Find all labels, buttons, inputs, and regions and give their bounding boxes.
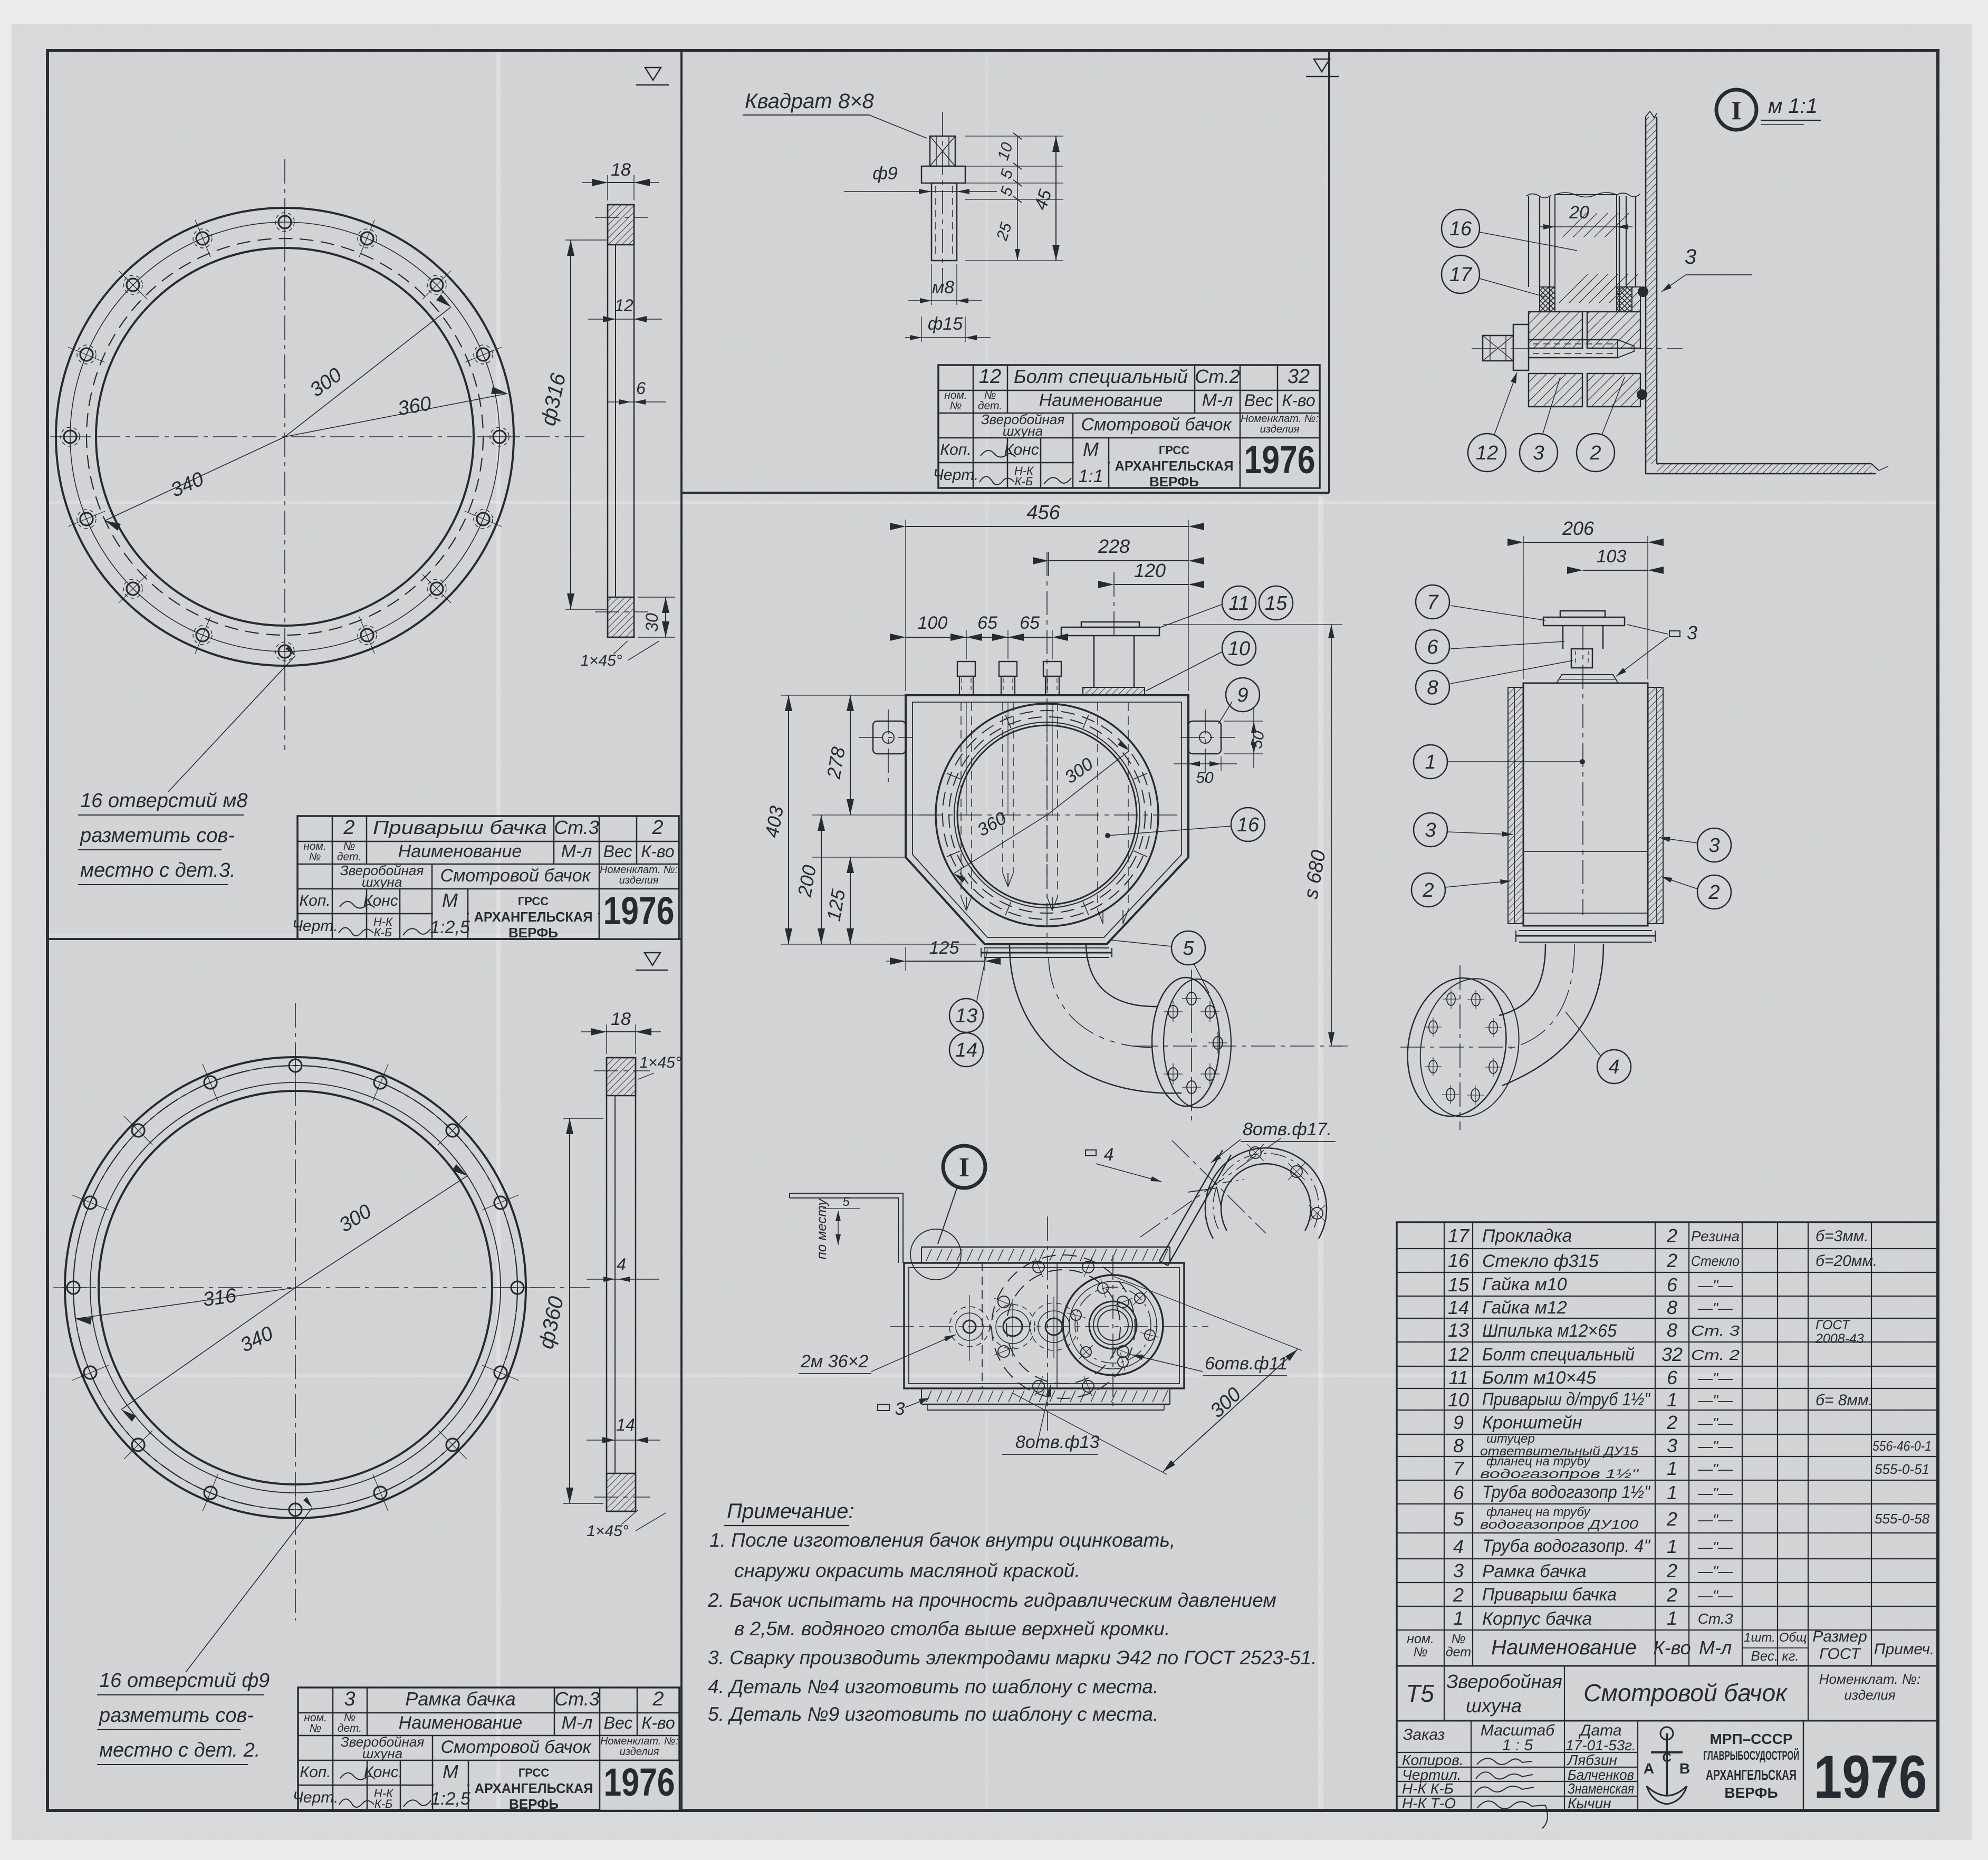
svg-text:1976: 1976 [603,889,675,933]
svg-text:—"—: —"— [1697,1300,1733,1316]
svg-text:М: М [443,1761,458,1782]
svg-text:556-46-0-1: 556-46-0-1 [1872,1438,1932,1454]
svg-text:ф15: ф15 [928,314,963,334]
svg-text:14: 14 [955,1039,977,1061]
svg-text:Рамка бачка: Рамка бачка [405,1688,515,1710]
svg-text:М-л: М-л [1699,1637,1732,1658]
svg-text:1: 1 [1667,1536,1677,1557]
svg-text:Номенклат. №:: Номенклат. №: [1819,1671,1920,1687]
svg-text:водогазопров 1½": водогазопров 1½" [1480,1467,1639,1481]
svg-text:1: 1 [1425,751,1436,773]
svg-text:12: 12 [1448,1344,1469,1365]
svg-text:5: 5 [842,1195,850,1209]
svg-text:5: 5 [1453,1508,1464,1530]
svg-text:7: 7 [1427,591,1439,613]
svg-text:14: 14 [1448,1297,1469,1318]
svg-text:ВЕРФЬ: ВЕРФЬ [1724,1785,1778,1801]
svg-text:М-л: М-л [562,1713,593,1733]
svg-text:65: 65 [977,613,997,633]
svg-text:456: 456 [1026,502,1060,524]
svg-text:1: 1 [1667,1389,1677,1411]
svg-text:Знаменская: Знаменская [1568,1780,1634,1797]
svg-text:2: 2 [1666,1584,1677,1606]
svg-text:Болт специальный: Болт специальный [1482,1345,1635,1365]
svg-text:Гайка м10: Гайка м10 [1482,1274,1567,1295]
svg-text:штуцер: штуцер [1486,1432,1535,1446]
svg-text:ф9: ф9 [872,164,897,184]
svg-text:водогазопров ДУ100: водогазопров ДУ100 [1480,1518,1639,1532]
svg-text:К-Б: К-Б [374,926,392,939]
svg-text:4: 4 [1453,1536,1464,1557]
svg-text:ГОСТ: ГОСТ [1819,1645,1861,1663]
svg-text:2: 2 [1666,1412,1677,1433]
svg-text:Номенклат. №:: Номенклат. №: [600,864,678,876]
svg-text:Вес: Вес [603,842,632,861]
svg-text:1976: 1976 [1814,1743,1927,1811]
svg-text:К-во: К-во [641,1713,675,1732]
svg-text:13: 13 [1448,1319,1469,1341]
svg-text:14: 14 [616,1415,635,1434]
svg-text:Наименование: Наименование [398,841,522,861]
svg-text:Рамка бачка: Рамка бачка [1482,1561,1587,1581]
svg-text:—"—: —"— [1697,1370,1733,1386]
svg-text:К-во: К-во [1282,391,1315,410]
svg-text:1×45°: 1×45° [587,1522,629,1540]
svg-text:1. После изготовления бачок: 1. После изготовления бачок внутри оцинк… [709,1529,1175,1551]
svg-text:Корпус бачка: Корпус бачка [1482,1609,1592,1629]
svg-text:1шт.: 1шт. [1744,1631,1775,1645]
svg-text:Конс.: Конс. [363,892,402,909]
svg-text:фланец на трубу: фланец на трубу [1486,1454,1591,1469]
svg-text:9: 9 [1237,684,1248,706]
svg-text:Смотровой бачок: Смотровой бачок [1583,1679,1788,1706]
svg-text:шхуна: шхуна [1003,423,1043,439]
svg-text:Наименование: Наименование [399,1713,523,1733]
svg-text:17-01-53г.: 17-01-53г. [1566,1737,1636,1753]
svg-text:1976: 1976 [1244,438,1315,482]
svg-text:Черт.: Черт. [933,466,979,484]
svg-text:2: 2 [652,1688,664,1710]
svg-text:Номенклат. №:: Номенклат. №: [1241,413,1319,425]
svg-text:8: 8 [1667,1297,1677,1318]
svg-text:16: 16 [1237,814,1260,836]
svg-text:б= 8мм.: б= 8мм. [1816,1392,1873,1409]
svg-text:2: 2 [651,817,663,839]
svg-text:№: № [1413,1645,1427,1660]
svg-text:изделия: изделия [619,875,659,886]
svg-text:ГОСТ: ГОСТ [1816,1318,1850,1332]
svg-text:Резина: Резина [1691,1228,1740,1244]
svg-text:ВЕРФЬ: ВЕРФЬ [1149,474,1199,490]
svg-text:1: 1 [1667,1607,1677,1629]
svg-text:Заказ: Заказ [1403,1726,1445,1743]
svg-text:Квадрат 8×8: Квадрат 8×8 [745,90,874,113]
svg-text:2м 36×2: 2м 36×2 [800,1351,868,1372]
svg-text:Кронштейн: Кронштейн [1482,1413,1582,1433]
svg-text:Примеч.: Примеч. [1874,1641,1935,1658]
svg-text:16: 16 [1449,218,1472,240]
svg-text:С: С [1662,1751,1671,1765]
svg-text:АРХАНГЕЛЬСКАЯ: АРХАНГЕЛЬСКАЯ [474,909,593,925]
svg-text:м8: м8 [932,277,954,298]
svg-text:—"—: —"— [1697,1461,1733,1477]
svg-text:изделия: изделия [1844,1687,1895,1703]
svg-text:Смотровой бачок: Смотровой бачок [440,866,591,886]
svg-text:2: 2 [343,817,354,839]
svg-text:Труба водогазопр 1½": Труба водогазопр 1½" [1482,1482,1651,1502]
svg-text:шхуна: шхуна [362,1746,402,1761]
svg-text:32: 32 [1288,366,1310,388]
svg-text:по месту: по месту [813,1197,829,1259]
svg-text:м 1:1: м 1:1 [1768,94,1818,118]
svg-text:1: 1 [1667,1458,1677,1479]
svg-text:555-0-58: 555-0-58 [1875,1511,1930,1527]
svg-text:3: 3 [895,1399,905,1419]
svg-text:М-л: М-л [1202,390,1233,410]
svg-text:1: 1 [1667,1482,1677,1503]
svg-text:1×45°: 1×45° [580,652,622,669]
svg-text:Конс.: Конс. [1004,441,1043,458]
svg-text:Ст.3: Ст.3 [1698,1610,1733,1627]
svg-text:316: 316 [201,1284,238,1311]
svg-text:Шпилька м12×65: Шпилька м12×65 [1482,1321,1617,1341]
svg-text:I: I [959,1153,969,1183]
svg-text:Наименование: Наименование [1491,1636,1637,1659]
svg-text:Н-К Т-О: Н-К Т-О [1402,1795,1456,1811]
svg-text:Смотровой бачок: Смотровой бачок [440,1737,592,1757]
svg-text:6: 6 [636,379,646,398]
svg-text:50: 50 [1196,769,1214,787]
svg-text:3: 3 [344,1688,355,1710]
svg-text:6: 6 [1667,1274,1678,1296]
svg-text:6: 6 [1427,636,1438,658]
svg-text:б=20мм.: б=20мм. [1816,1252,1877,1270]
svg-text:8отв.ф13: 8отв.ф13 [1015,1432,1100,1452]
svg-text:4: 4 [1104,1145,1114,1165]
svg-text:дет.: дет. [337,851,361,863]
svg-text:К-во: К-во [641,842,674,861]
svg-text:—"—: —"— [1697,1563,1733,1579]
svg-text:ВЕРФЬ: ВЕРФЬ [509,1796,559,1812]
svg-text:Ст.3: Ст.3 [554,817,599,838]
svg-text:Гайка м12: Гайка м12 [1482,1298,1567,1318]
svg-text:3: 3 [1667,1435,1677,1456]
svg-text:1 : 5: 1 : 5 [1502,1737,1533,1754]
svg-text:К-во: К-во [1653,1637,1691,1658]
svg-text:Коп.: Коп. [299,892,330,909]
svg-text:ГЛАВРЫБОСУДОСТРОЙ: ГЛАВРЫБОСУДОСТРОЙ [1703,1748,1799,1763]
svg-text:М: М [1083,438,1099,460]
svg-text:7: 7 [1453,1458,1465,1479]
svg-text:Зверобойная: Зверобойная [1446,1671,1562,1692]
svg-text:2: 2 [1453,1584,1464,1606]
svg-text:5. Деталь №9 изготовить по: 5. Деталь №9 изготовить по шаблону с мес… [708,1703,1158,1725]
svg-text:6отв.ф11: 6отв.ф11 [1205,1354,1288,1374]
svg-text:10: 10 [1228,638,1250,660]
svg-text:К-Б: К-Б [374,1797,393,1810]
svg-text:№: № [950,400,962,412]
svg-text:ВЕРФЬ: ВЕРФЬ [508,925,558,941]
svg-text:32: 32 [1662,1344,1683,1365]
svg-text:18: 18 [611,160,631,180]
svg-text:ГРСС: ГРСС [1159,444,1189,457]
svg-text:Номенклат. №:: Номенклат. №: [600,1736,678,1747]
svg-text:1: 1 [1453,1607,1464,1629]
svg-text:—"—: —"— [1697,1587,1733,1604]
svg-text:4: 4 [617,1255,626,1274]
svg-text:3: 3 [1708,835,1720,857]
svg-text:Размер: Размер [1812,1628,1867,1645]
svg-text:3: 3 [1453,1560,1464,1581]
svg-text:—"—: —"— [1697,1511,1733,1528]
svg-text:изделия: изделия [1260,424,1300,435]
svg-text:3: 3 [1685,245,1696,269]
svg-text:Болт специальный: Болт специальный [1014,366,1188,387]
svg-text:А: А [1644,1760,1654,1777]
svg-text:местно с дет.3.: местно с дет.3. [80,859,236,881]
svg-text:ГРСС: ГРСС [518,1766,549,1779]
svg-text:Смотровой бачок: Смотровой бачок [1081,415,1232,435]
svg-text:дет.: дет. [978,400,1002,412]
svg-text:ГРСС: ГРСС [518,895,549,908]
svg-text:местно с дет. 2.: местно с дет. 2. [99,1739,260,1761]
svg-text:18: 18 [611,1009,631,1029]
svg-text:снаружи окрасить масляной к: снаружи окрасить масляной краской. [734,1560,1080,1581]
svg-text:9: 9 [1453,1412,1464,1433]
svg-text:16: 16 [1448,1250,1470,1271]
svg-text:12: 12 [614,296,633,315]
svg-text:3. Сварку производить электр: 3. Сварку производить электродами марки … [708,1647,1317,1669]
svg-text:4. Деталь №4 изготовить по: 4. Деталь №4 изготовить по шаблону с мес… [708,1676,1158,1698]
svg-text:11: 11 [1448,1367,1468,1388]
svg-text:20: 20 [1569,203,1589,223]
svg-text:шхуна: шхуна [1466,1695,1522,1717]
svg-text:шхуна: шхуна [362,874,402,890]
svg-text:206: 206 [1562,517,1595,539]
svg-text:фланец на трубу: фланец на трубу [1486,1505,1591,1519]
svg-text:Черт.: Черт. [292,917,338,935]
svg-text:555-0-51: 555-0-51 [1875,1461,1929,1477]
svg-text:2: 2 [1666,1250,1677,1271]
svg-text:1:2,5: 1:2,5 [430,1789,470,1809]
svg-text:МРП–СССР: МРП–СССР [1710,1731,1792,1747]
svg-text:2: 2 [1589,442,1601,464]
svg-text:—"—: —"— [1697,1539,1733,1555]
svg-text:12: 12 [979,366,1001,388]
svg-text:50: 50 [1247,730,1267,750]
svg-text:разметить сов-: разметить сов- [80,824,235,847]
svg-text:30: 30 [642,613,661,632]
svg-text:Труба водогазопр. 4": Труба водогазопр. 4" [1482,1536,1651,1556]
svg-text:Стекло: Стекло [1691,1253,1740,1269]
svg-text:ном.: ном. [1407,1632,1434,1646]
svg-text:Вес. кг.: Вес. кг. [1751,1648,1799,1664]
svg-text:Вес: Вес [1244,391,1273,410]
svg-text:120: 120 [1134,560,1166,581]
svg-text:Ст. 3: Ст. 3 [1691,1322,1740,1339]
svg-text:Приварыш д/труб 1½": Приварыш д/труб 1½" [1482,1389,1651,1410]
svg-text:Копиров.: Копиров. [1402,1752,1464,1768]
svg-text:Примечание:: Примечание: [727,1500,854,1523]
svg-text:I: I [1731,95,1741,125]
svg-text:АРХАНГЕЛЬСКАЯ: АРХАНГЕЛЬСКАЯ [1115,458,1234,474]
svg-text:100: 100 [918,613,948,633]
svg-text:Вес: Вес [604,1713,633,1732]
svg-text:В: В [1679,1760,1690,1777]
svg-text:Т5: Т5 [1406,1680,1434,1707]
svg-text:1:1: 1:1 [1078,466,1103,486]
svg-text:Ст.2: Ст.2 [1195,366,1240,387]
svg-text:2008-43: 2008-43 [1815,1331,1864,1346]
svg-text:103: 103 [1597,547,1627,567]
svg-text:АРХАНГЕЛЬСКАЯ: АРХАНГЕЛЬСКАЯ [475,1780,593,1796]
svg-text:изделия: изделия [620,1746,659,1758]
svg-text:Кычин: Кычин [1568,1795,1611,1811]
svg-text:Наименование: Наименование [1039,390,1163,410]
svg-text:Прокладка: Прокладка [1482,1226,1572,1246]
svg-text:11: 11 [1228,592,1249,615]
svg-text:1×45°: 1×45° [639,1054,681,1071]
svg-text:3: 3 [1687,622,1697,644]
svg-text:8: 8 [1453,1435,1464,1456]
svg-text:3: 3 [1425,819,1436,841]
svg-text:—"—: —"— [1697,1438,1733,1454]
svg-text:в 2,5м. водяного столба выше: в 2,5м. водяного столба выше верхней кро… [734,1618,1170,1640]
svg-text:12: 12 [1476,442,1498,464]
svg-text:2: 2 [1666,1508,1677,1530]
svg-text:Приварыш бачка: Приварыш бачка [373,817,547,838]
svg-text:13: 13 [955,1005,977,1027]
svg-text:АРХАНГЕЛЬСКАЯ: АРХАНГЕЛЬСКАЯ [1706,1767,1797,1783]
svg-text:3: 3 [1533,442,1544,464]
svg-text:8: 8 [1667,1319,1677,1341]
svg-text:10: 10 [1448,1389,1469,1411]
svg-text:Н-К К-Б: Н-К К-Б [1402,1780,1454,1797]
svg-text:№: № [1451,1632,1465,1646]
svg-text:Ст.3: Ст.3 [554,1688,600,1710]
svg-text:К-Б: К-Б [1015,475,1033,488]
svg-text:Болт м10×45: Болт м10×45 [1482,1368,1596,1388]
svg-text:Черт.: Черт. [293,1789,339,1806]
svg-text:Общ: Общ [1779,1631,1807,1645]
svg-text:6: 6 [1453,1482,1464,1503]
svg-text:15: 15 [1265,592,1288,615]
svg-text:Конс.: Конс. [364,1763,403,1781]
svg-text:15: 15 [1448,1274,1470,1296]
svg-text:—"—: —"— [1697,1415,1733,1431]
svg-text:—"—: —"— [1697,1392,1733,1408]
svg-text:8отв.ф17.: 8отв.ф17. [1243,1119,1332,1139]
svg-text:Коп.: Коп. [940,441,971,458]
svg-text:1:2,5: 1:2,5 [430,917,470,937]
svg-text:8: 8 [1427,677,1438,699]
svg-text:дет.: дет. [338,1722,362,1734]
svg-text:228: 228 [1098,535,1130,557]
svg-text:разметить сов-: разметить сов- [99,1704,254,1727]
svg-text:125: 125 [929,938,959,958]
svg-text:—"—: —"— [1697,1277,1733,1293]
svg-text:2: 2 [1666,1560,1677,1581]
svg-text:Приварыш бачка: Приварыш бачка [1482,1585,1617,1605]
svg-text:17: 17 [1449,264,1473,286]
svg-text:2: 2 [1422,879,1434,902]
svg-text:17: 17 [1448,1225,1470,1247]
svg-text:М: М [442,889,458,911]
svg-text:5: 5 [1183,937,1194,960]
svg-text:1976: 1976 [604,1760,675,1804]
svg-text:Лябзин: Лябзин [1567,1752,1617,1768]
svg-text:4: 4 [1608,1056,1619,1078]
svg-text:М-л: М-л [561,841,592,861]
svg-text:2: 2 [1708,881,1720,904]
svg-text:2. Бачок испытать на прочно: 2. Бачок испытать на прочность гидравлич… [707,1589,1276,1611]
svg-text:Коп.: Коп. [300,1763,331,1781]
svg-text:№: № [309,851,321,863]
svg-text:16 отверстий м8: 16 отверстий м8 [80,790,248,812]
svg-text:2: 2 [1666,1225,1677,1247]
svg-text:6: 6 [1667,1367,1678,1388]
svg-text:дет: дет [1446,1645,1471,1660]
svg-text:Стекло ф315: Стекло ф315 [1482,1251,1599,1271]
svg-text:16 отверстий ф9: 16 отверстий ф9 [99,1670,270,1692]
svg-text:65: 65 [1020,613,1040,633]
svg-text:—"—: —"— [1697,1485,1733,1501]
svg-text:№: № [310,1722,322,1734]
svg-text:Ст. 2: Ст. 2 [1691,1347,1740,1363]
svg-text:б=3мм.: б=3мм. [1816,1228,1869,1245]
